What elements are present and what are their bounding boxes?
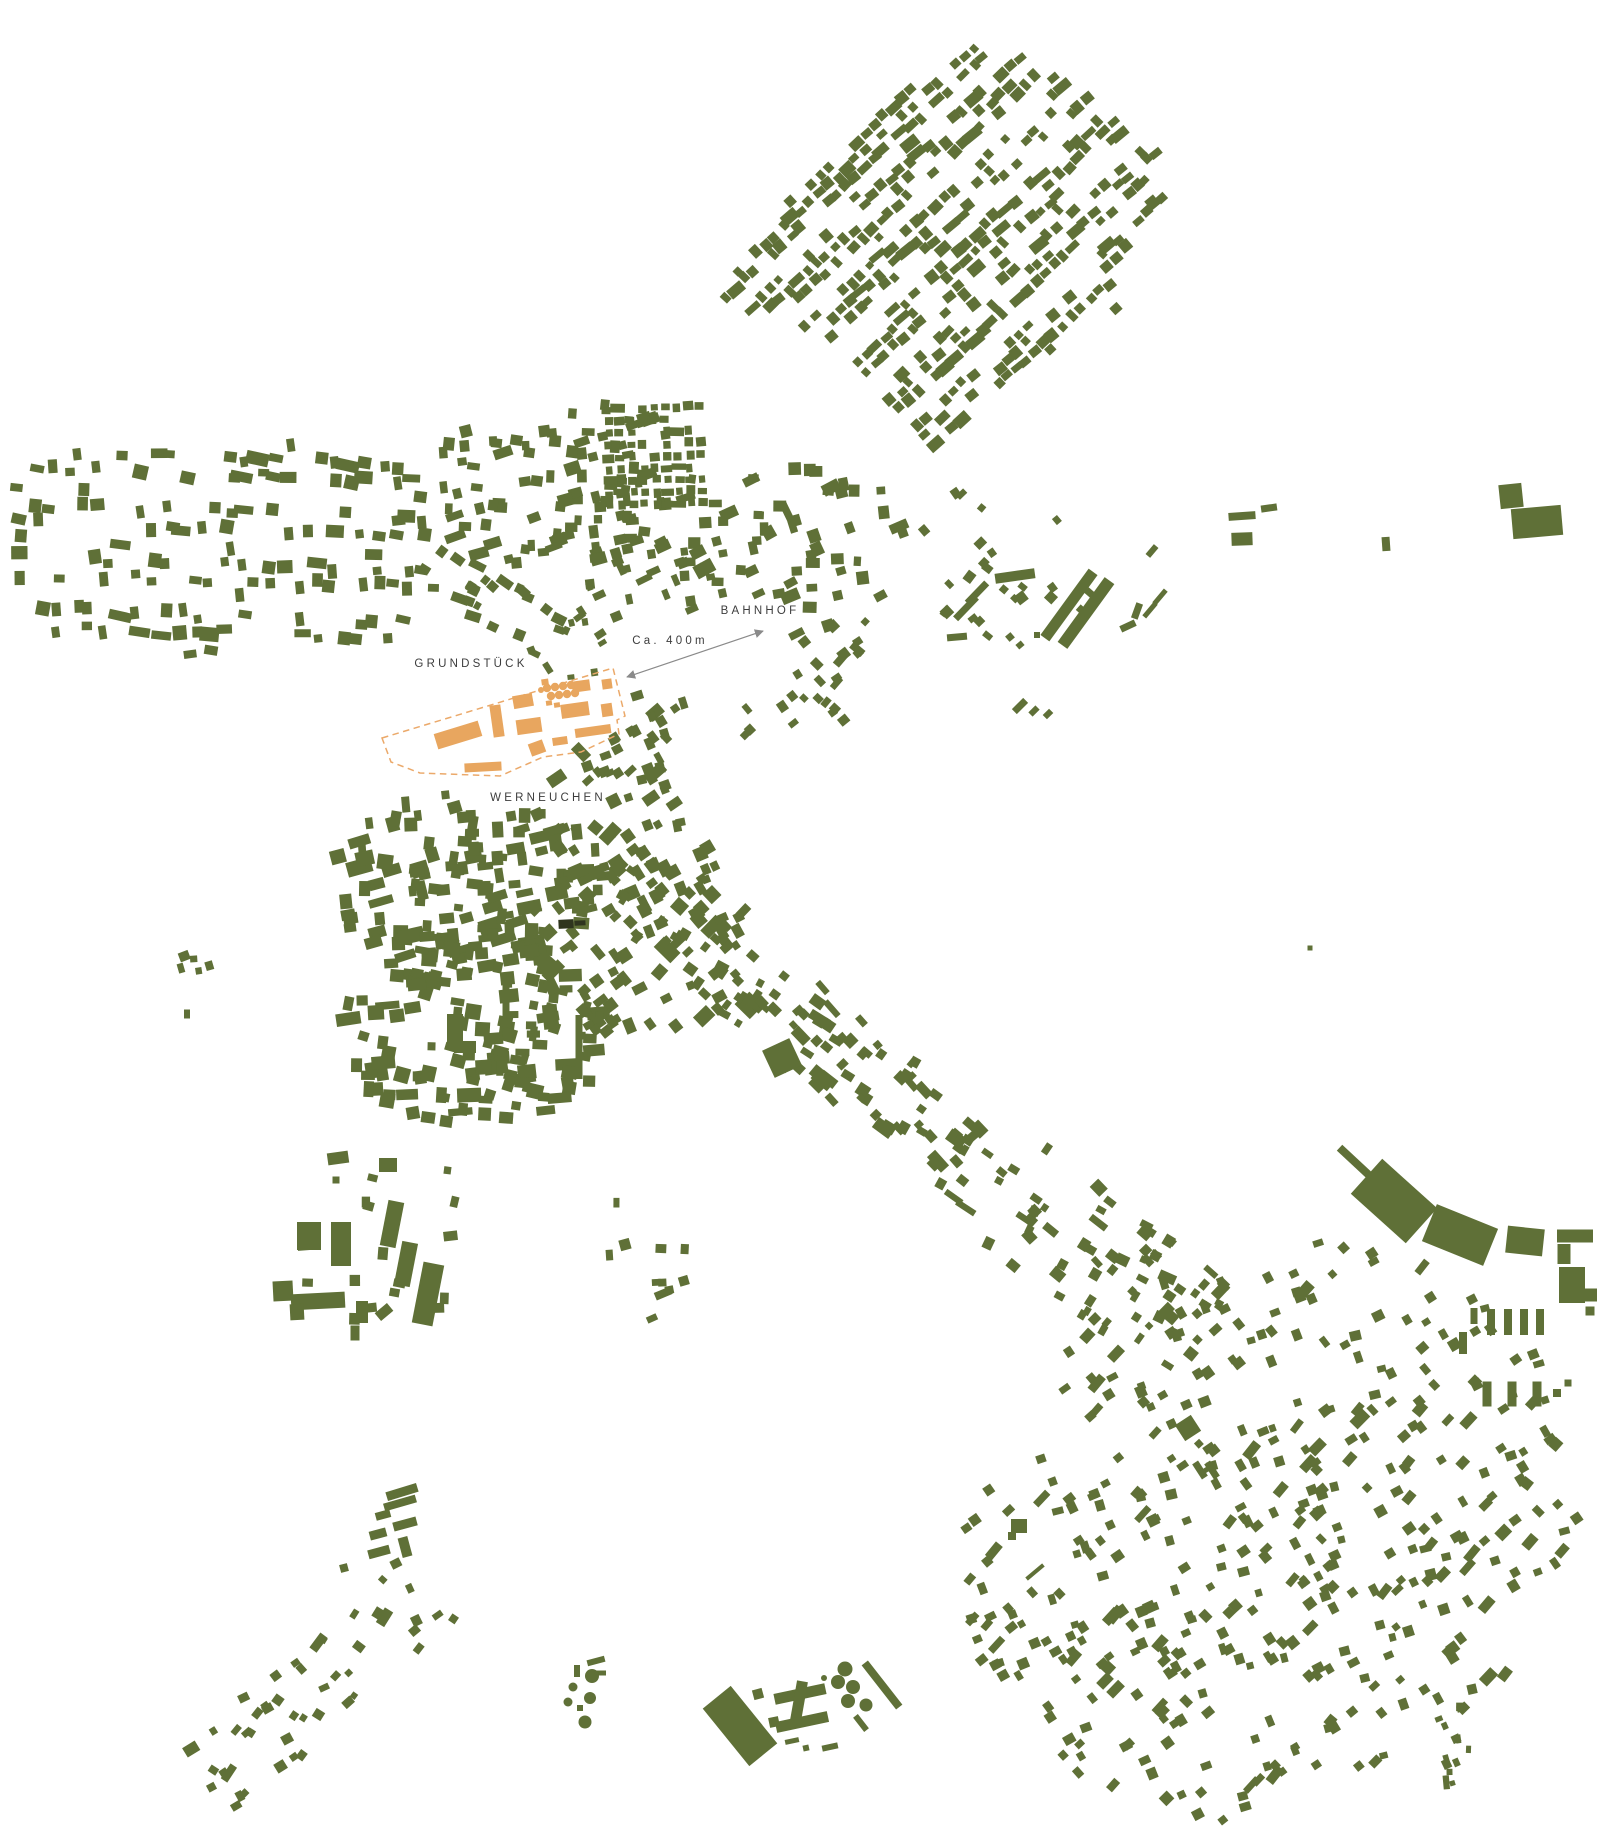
building-footprint [622,511,630,522]
building-footprint [892,401,905,414]
building-footprint [698,488,707,494]
building-footprint [28,498,42,513]
building-footprint [638,405,647,413]
building-footprint [208,1765,220,1776]
building-footprint [590,490,601,503]
building-footprint [465,829,479,837]
building-footprint [355,529,364,539]
building-footprint [1332,1522,1343,1532]
building-footprint [423,836,434,850]
building-footprint [835,303,847,315]
building-footprint [65,468,75,477]
building-footprint [1265,1355,1277,1368]
building-footprint [393,476,403,490]
building-footprint [1136,1273,1149,1284]
building-footprint [380,461,390,472]
building-footprint [1054,1291,1066,1302]
building-footprint [464,1003,482,1020]
building-footprint [307,557,328,570]
building-footprint [130,606,140,619]
building-footprint [1201,1705,1215,1719]
building-footprint [454,904,464,912]
building-footprint [559,969,582,982]
building-footprint [939,307,951,319]
building-footprint [618,1238,631,1251]
building-footprint [1256,1329,1267,1341]
site-building-circle [563,690,571,698]
building-footprint [982,1483,995,1496]
building-footprint [1016,1657,1030,1671]
building-footprint [583,1044,605,1057]
building-footprint [459,911,474,924]
building-footprint [1167,1454,1177,1464]
building-footprint [1065,239,1080,254]
building-footprint [1013,220,1027,234]
building-footprint [1065,203,1081,219]
building-footprint [1191,1807,1205,1821]
building-footprint [843,310,858,325]
building-footprint [318,1683,330,1693]
building-footprint [11,512,27,525]
building-footprint [778,970,790,982]
building-footprint [394,1241,418,1287]
building-footprint [1264,1715,1275,1728]
building-footprint [1508,1382,1517,1407]
building-footprint [1536,1309,1544,1335]
building-footprint [592,589,606,601]
building-footprint [1028,705,1039,716]
site-building [554,702,561,708]
building-footprint [668,1018,683,1034]
building-footprint [762,1038,802,1078]
building-footprint [443,1166,451,1174]
building-footprint [444,529,466,544]
building-footprint [14,571,24,585]
building-footprint [506,811,517,822]
building-footprint [1268,1424,1277,1433]
building-footprint [783,576,798,589]
building-footprint [652,1279,661,1286]
building-footprint [1459,1332,1467,1354]
building-footprint [605,417,613,425]
building-footprint [1026,1586,1038,1598]
tank-circle [585,1669,599,1683]
building-footprint [601,407,610,414]
building-footprint [671,574,681,587]
building-footprint [383,633,393,644]
building-footprint [840,1069,855,1083]
building-footprint [390,969,405,983]
building-footprint [1457,1495,1468,1507]
building-footprint [776,700,789,714]
building-footprint [783,194,797,208]
building-footprint [1071,1674,1081,1684]
building-footprint [641,789,660,807]
building-footprint [512,628,526,642]
building-footprint [962,570,976,584]
site-building [512,693,534,709]
building-footprint [1449,1780,1456,1787]
building-footprint [1113,1452,1125,1463]
building-footprint [873,589,888,602]
building-footprint [1570,1511,1584,1525]
building-footprint [1446,1769,1452,1775]
building-footprint [333,1177,340,1184]
building-footprint [1237,1424,1248,1436]
building-footprint [660,993,673,1005]
building-footprint [1388,1633,1396,1642]
building-footprint [540,603,553,616]
building-footprint [1377,1365,1387,1373]
building-footprint [528,865,543,877]
building-footprint [562,530,575,541]
building-footprint [574,1665,580,1677]
site-building [552,736,568,746]
building-footprint [1039,267,1051,279]
building-footprint [768,1716,780,1728]
building-footprint [1373,1504,1388,1519]
building-footprint [405,1583,415,1594]
building-footprint [711,536,722,547]
building-footprint [1062,1732,1077,1746]
site-building [516,717,543,735]
building-footprint [1106,1372,1119,1383]
building-footprint [1057,1749,1068,1760]
building-footprint [443,1230,458,1241]
building-footprint [1042,1222,1059,1238]
building-footprint [1210,1477,1221,1490]
building-footprint [1288,1268,1299,1279]
building-footprint [1042,1700,1054,1713]
building-footprint [1044,1710,1057,1723]
building-footprint [402,582,412,596]
building-footprint [826,311,841,326]
building-footprint [1180,1399,1193,1411]
building-footprint [1051,1506,1064,1516]
building-footprint [964,388,979,403]
building-footprint [1293,1515,1307,1529]
building-footprint [1004,1621,1018,1634]
building-footprint [147,577,157,586]
site-plan-map: GRUNDSTÜCK BAHNHOF Ca. 400m WERNEUCHEN [0,0,1600,1833]
building-footprint [108,609,133,624]
building-footprint [342,996,354,1011]
building-footprint [1293,1398,1303,1407]
building-footprint [1045,307,1061,323]
building-footprint [339,1563,349,1573]
building-footprint [91,461,101,474]
building-footprint [631,981,648,996]
building-footprint [1553,1389,1561,1397]
building-footprint [389,1288,400,1298]
building-footprint [1193,1658,1206,1671]
building-footprint [377,1035,389,1049]
building-footprint [686,485,695,494]
building-footprint [397,509,415,522]
building-footprint [357,456,372,470]
building-footprint [908,287,921,299]
building-footprint [177,963,186,974]
building-footprint [477,881,491,896]
building-footprint [289,1752,299,1762]
building-footprint [1140,1530,1150,1541]
building-footprint [927,199,944,216]
building-footprint [206,1782,217,1793]
building-footprint [624,793,634,803]
building-footprint [1552,1499,1563,1510]
building-footprint [680,547,688,556]
building-footprint [344,923,357,933]
building-footprint [1419,1363,1431,1376]
building-footprint [844,521,856,534]
building-footprint [629,452,636,461]
building-footprint [680,1244,689,1254]
building-footprint [605,792,622,809]
building-footprint [1088,1214,1108,1232]
building-footprint [1396,1575,1406,1585]
building-footprint [1280,1652,1289,1663]
building-footprint [1366,1404,1378,1416]
building-footprint [661,403,670,410]
building-footprint [1011,1519,1027,1533]
building-footprint [415,898,426,906]
site-building [528,739,547,756]
building-footprint [748,244,763,259]
building-footprint [1176,1460,1189,1472]
building-footprint [386,578,399,587]
building-footprint [77,497,88,511]
dark-building [558,919,573,929]
building-footprint [956,68,970,82]
building-footprint [151,630,172,641]
building-footprint [627,442,635,448]
building-footprint [392,462,404,475]
building-footprint [1161,1359,1174,1371]
building-footprint [542,661,553,674]
building-footprint [372,566,381,575]
building-footprint [810,657,824,671]
building-footprint [1095,1205,1106,1215]
building-footprint [1235,1502,1247,1513]
building-footprint [1285,1572,1299,1587]
building-footprint [452,488,463,500]
building-footprint [671,463,686,470]
building-footprint [1478,1595,1496,1614]
building-footprint [358,577,368,592]
building-footprint [427,1042,435,1050]
building-footprint [315,451,329,464]
building-footprint [72,448,82,461]
building-footprint [51,602,61,616]
building-footprint [971,176,984,189]
building-footprint [329,848,347,865]
building-footprint [403,1001,421,1015]
building-footprint [1437,1603,1450,1617]
building-footprint [367,1173,378,1182]
building-footprint [179,470,196,485]
building-footprint [417,516,427,529]
building-footprint [363,1081,374,1097]
building-footprint [1005,632,1015,642]
building-footprint [810,309,822,321]
building-footprint [734,1019,743,1028]
building-footprint [1466,1683,1477,1695]
building-footprint [1258,1550,1272,1564]
building-footprint [128,626,150,638]
building-footprint [654,500,662,509]
building-footprint [773,275,783,285]
building-footprint [412,1262,444,1327]
building-footprint [673,452,681,460]
site-building-circle [571,689,579,697]
building-footprint [1065,1630,1076,1642]
building-footprint [51,626,60,638]
building-footprint [216,624,232,634]
building-footprint [349,1608,359,1619]
building-footprint [1216,1562,1227,1572]
building-footprint [977,1582,989,1595]
site-building [560,701,590,719]
building-footprint [815,980,829,995]
building-footprint [808,993,826,1010]
building-footprint [966,368,981,382]
building-footprint [1533,1359,1545,1368]
building-footprint [915,1081,933,1100]
building-footprint [1505,1226,1545,1257]
building-footprint [327,564,337,579]
building-footprint [1495,1443,1507,1454]
building-footprint [1311,1759,1322,1770]
building-footprint [972,1634,983,1644]
building-footprint [989,245,1003,259]
building-footprint [624,764,637,777]
building-footprint [860,617,869,627]
building-footprint [918,524,931,537]
building-footprint [942,289,957,304]
building-footprint [1398,1697,1410,1710]
building-footprint [1402,1521,1417,1536]
building-footprint [553,528,562,539]
building-footprint [831,553,844,564]
building-footprint [590,944,606,961]
building-footprint [955,376,966,387]
building-footprint [486,620,499,632]
building-footprint [1231,532,1252,546]
building-footprint [853,1714,869,1732]
building-footprint [649,452,660,461]
building-footprint [171,525,191,536]
building-footprint [1273,1481,1289,1498]
building-footprint [82,602,92,615]
building-footprint [364,935,384,950]
building-footprint [443,941,460,958]
building-footprint [1000,134,1010,144]
building-footprint [10,483,23,492]
building-footprint [1162,1289,1176,1303]
site-building [546,700,553,706]
building-footprint [226,541,236,556]
building-footprint [389,529,404,540]
building-footprint [406,1106,421,1120]
building-footprint [1080,90,1095,105]
building-footprint [502,953,520,967]
building-footprint [551,612,568,627]
building-footprint [1384,1547,1397,1560]
building-footprint [1434,1566,1451,1583]
building-footprint [636,902,652,919]
building-footprint [613,1198,619,1208]
building-footprint [219,519,235,535]
building-footprint [1422,1204,1498,1266]
building-footprint [1097,1570,1110,1581]
building-footprint [1302,1596,1317,1611]
building-footprint [1297,1576,1310,1589]
building-footprint [1097,178,1112,193]
building-footprint [1290,1418,1304,1434]
building-footprint [640,416,648,423]
building-footprint [682,946,694,958]
building-footprint [567,674,575,680]
building-footprint [644,1017,657,1031]
building-footprint [926,434,945,453]
building-footprint [1090,114,1103,128]
building-footprint [295,612,305,627]
building-footprint [1029,1193,1042,1205]
building-footprint [90,498,105,511]
building-footprint [605,491,613,498]
building-footprint [1012,698,1028,714]
building-footprint [1300,1444,1310,1455]
building-footprint [1057,321,1068,332]
building-footprint [696,450,705,458]
building-footprint [803,601,817,613]
building-footprint [277,560,293,574]
building-footprint [448,1613,459,1624]
building-footprint [1072,1549,1081,1558]
building-footprint [1452,1757,1461,1767]
building-footprint [475,1059,492,1074]
building-footprint [1173,1283,1186,1296]
label-bahnhof: BAHNHOF [721,605,800,617]
building-footprint [1157,1390,1168,1401]
building-footprint [651,963,669,981]
building-footprint [1074,302,1087,315]
building-footprint [98,625,108,640]
building-footprint [646,1313,658,1323]
building-footprint [661,501,672,508]
building-footprint [401,796,410,812]
building-footprint [1022,320,1033,331]
building-footprint [1194,1439,1204,1449]
building-footprint [628,477,637,485]
building-footprint [1234,1458,1247,1472]
building-footprint [467,462,480,471]
building-footprint [751,588,765,600]
building-footprint [1339,1339,1351,1350]
building-footprint [1110,1549,1125,1563]
building-footprint [606,501,613,509]
building-footprint [1114,162,1128,176]
building-footprint [204,645,219,656]
building-footprint [546,428,557,438]
building-footprint [35,600,51,616]
building-footprint [874,232,884,242]
building-footprint [960,1522,972,1534]
building-footprint [1349,1330,1362,1342]
building-footprint [678,696,689,709]
building-footprint [1099,259,1114,274]
building-footprint [247,577,258,587]
